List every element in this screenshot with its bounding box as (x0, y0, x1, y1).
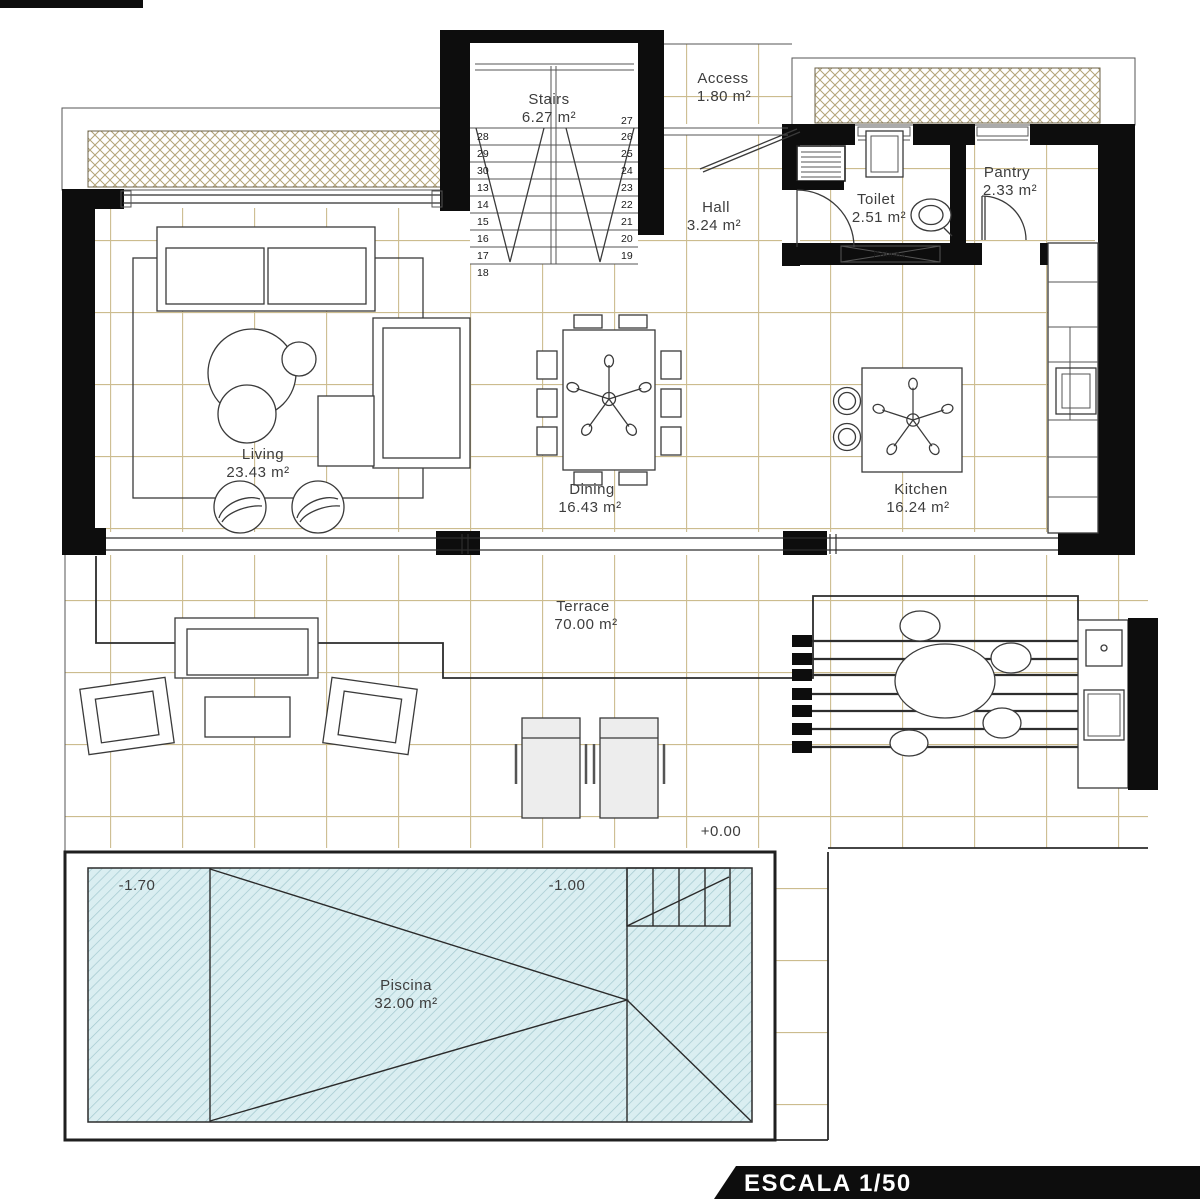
pool-area: 32.00 m² (374, 995, 437, 1012)
svg-text:30: 30 (477, 165, 489, 177)
pier-bottom-1 (62, 528, 106, 555)
dining-area: 16.43 m² (558, 499, 621, 516)
kitchen-label: Kitchen (894, 481, 948, 498)
toilet-label: Toilet (857, 191, 895, 208)
stairs-floor (470, 43, 638, 264)
svg-text:14: 14 (477, 199, 489, 211)
pool-shallow-depth-label: -1.00 (549, 877, 586, 894)
access-area: 1.80 m² (697, 88, 751, 105)
kitchen-area: 16.24 m² (886, 499, 949, 516)
floor-plan-page: Stairs 6.27 m² 28 29 30 13 14 15 16 17 1… (0, 0, 1200, 1200)
svg-text:13: 13 (477, 182, 489, 194)
sofa-top (157, 227, 375, 311)
svg-text:17: 17 (477, 250, 489, 262)
wall-stairs-left (440, 43, 470, 211)
toilet-area: 2.51 m² (852, 209, 906, 226)
outdoor-armchair-left (80, 677, 174, 754)
access-label: Access (697, 70, 748, 87)
outdoor-coffee-table (205, 697, 290, 737)
svg-text:27: 27 (621, 115, 633, 127)
svg-text:28: 28 (477, 131, 489, 143)
svg-text:20: 20 (621, 233, 633, 245)
svg-text:25: 25 (621, 148, 633, 160)
sun-lounger-1 (516, 718, 586, 818)
round-armchair-2 (292, 481, 344, 533)
round-armchair-1 (214, 481, 266, 533)
wall-left (62, 189, 95, 533)
planter-top-left (62, 108, 460, 190)
pier-bottom-2 (436, 531, 480, 555)
sun-lounger-2 (594, 718, 664, 818)
stairs-area: 6.27 m² (522, 109, 576, 126)
entrance-threshold (664, 128, 788, 135)
wall-right (1098, 124, 1135, 555)
window-band-top-left (123, 195, 440, 203)
pool: -1.70 -1.00 Piscina 32.00 m² (65, 852, 775, 1140)
hall-label: Hall (702, 199, 730, 216)
wall-top-1 (792, 124, 855, 145)
bbq-counter (1078, 618, 1158, 790)
svg-text:15: 15 (477, 216, 489, 228)
svg-text:21: 21 (621, 216, 633, 228)
svg-text:23: 23 (621, 182, 633, 194)
terrace-level-label: +0.00 (701, 823, 741, 840)
terrace-label: Terrace (556, 598, 610, 615)
svg-text:22: 22 (621, 199, 633, 211)
outdoor-armchair-right (323, 677, 417, 754)
svg-text:18: 18 (477, 267, 489, 279)
svg-text:29: 29 (477, 148, 489, 160)
pool-deep-depth-label: -1.70 (119, 877, 156, 894)
glass-wall-bottom (106, 538, 1058, 550)
pool-label: Piscina (380, 977, 432, 994)
wall-stairs-right (638, 43, 664, 235)
living-area: 23.43 m² (226, 464, 289, 481)
scale-banner-text: ESCALA 1/50 (744, 1170, 912, 1197)
closet-label: Palmas (874, 250, 907, 259)
wall-pantry-bottom-left (950, 243, 982, 265)
svg-text:24: 24 (621, 165, 633, 177)
outdoor-sofa (175, 618, 318, 678)
bbq-wall (1128, 618, 1158, 790)
pantry-area: 2.33 m² (983, 182, 1037, 199)
terrace-area: 70.00 m² (554, 616, 617, 633)
stairs-label: Stairs (528, 91, 569, 108)
pier-bottom-3 (783, 531, 827, 555)
hall-area: 3.24 m² (687, 217, 741, 234)
dining-label: Dining (569, 481, 615, 498)
washbasin (866, 131, 903, 177)
wall-stairs-top (440, 30, 664, 43)
svg-text:19: 19 (621, 250, 633, 262)
floor-plan-canvas: Stairs 6.27 m² 28 29 30 13 14 15 16 17 1… (0, 0, 1200, 1200)
svg-text:16: 16 (477, 233, 489, 245)
planter-top-right (792, 58, 1135, 125)
svg-text:26: 26 (621, 131, 633, 143)
stairs-room: Stairs 6.27 m² 28 29 30 13 14 15 16 17 1… (440, 30, 664, 279)
scale-banner: ESCALA 1/50 (714, 1166, 1200, 1199)
glass-mullions (462, 534, 836, 554)
pantry-label: Pantry (984, 164, 1030, 181)
kitchen-counter (1048, 243, 1098, 533)
wall-top-left-bar (0, 0, 143, 8)
living-label: Living (242, 446, 284, 463)
wall-top-3 (1030, 124, 1098, 145)
